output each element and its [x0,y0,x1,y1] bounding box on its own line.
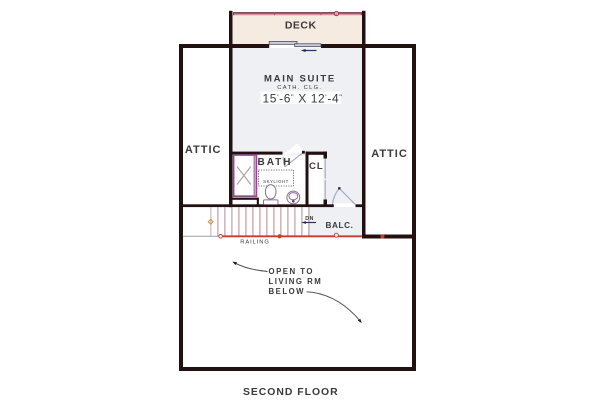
svg-text:SKYLIGHT: SKYLIGHT [263,179,289,184]
svg-text:BATH: BATH [257,157,292,168]
svg-text:BELOW: BELOW [269,287,306,296]
svg-text:ATTIC: ATTIC [185,144,222,156]
svg-text:SECOND FLOOR: SECOND FLOOR [243,387,339,398]
svg-text:DN: DN [305,216,314,222]
svg-text:BALC.: BALC. [325,221,353,230]
svg-text:15'-6" X 12'-4": 15'-6" X 12'-4" [263,91,343,105]
svg-text:DECK: DECK [285,19,317,31]
svg-text:CL: CL [309,161,324,172]
svg-text:RAILING: RAILING [240,240,270,246]
svg-text:ATTIC: ATTIC [371,148,408,160]
svg-text:CATH. CLG.: CATH. CLG. [277,85,322,91]
svg-text:MAIN SUITE: MAIN SUITE [264,73,336,84]
svg-text:LIVING RM: LIVING RM [269,277,323,286]
svg-text:OPEN TO: OPEN TO [269,267,314,276]
